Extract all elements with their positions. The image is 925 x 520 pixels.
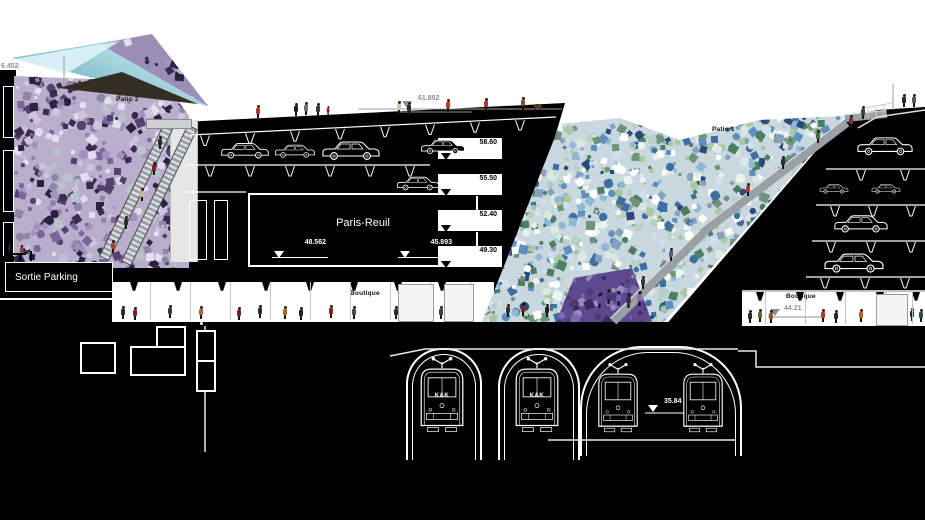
person-figure [780, 156, 786, 169]
mosaic-tile [624, 319, 629, 322]
person-figure [351, 306, 357, 319]
mosaic-tile [599, 212, 609, 222]
mosaic-tile [563, 194, 571, 202]
mosaic-tile [652, 181, 658, 187]
mosaic-tile [56, 33, 66, 43]
mosaic-tile [843, 102, 849, 108]
mosaic-tile [2, 82, 7, 87]
mosaic-tile [527, 282, 533, 288]
person-figure [132, 307, 138, 320]
mosaic-tile [2, 111, 9, 118]
person-figure [860, 106, 866, 119]
mosaic-tile [154, 107, 164, 117]
person-figure [520, 97, 526, 110]
mosaic-tile [674, 128, 684, 138]
mosaic-tile [114, 168, 122, 176]
mosaic-tile [634, 195, 639, 200]
mosaic-tile [597, 101, 607, 111]
mosaic-tile [579, 242, 584, 247]
service-room [156, 326, 186, 348]
mosaic-tile [615, 209, 621, 215]
mosaic-tile [629, 104, 638, 113]
mosaic-tile [632, 122, 640, 130]
mosaic-tile [659, 239, 665, 245]
mosaic-tile [764, 114, 770, 120]
mosaic-tile [647, 112, 659, 124]
service-dot [200, 322, 203, 325]
mosaic-tile [154, 267, 158, 268]
mosaic-tile [14, 119, 22, 122]
person-figure [303, 102, 309, 115]
mosaic-tile [589, 104, 596, 111]
left-edge-panel [3, 150, 14, 212]
mosaic-tile [879, 103, 885, 109]
storefront-doorframe [398, 284, 434, 322]
person-figure [745, 183, 751, 196]
mosaic-tile [685, 124, 692, 131]
mosaic-tile [552, 280, 560, 288]
mosaic-tile [706, 246, 714, 254]
mosaic-tile [573, 103, 578, 108]
mosaic-tile [539, 240, 544, 245]
mosaic-tile [702, 123, 709, 130]
mosaic-tile [78, 230, 85, 237]
mosaic-tile [579, 147, 584, 152]
mosaic-tile [198, 39, 209, 50]
person-figure [120, 306, 126, 319]
mosaic-tile [696, 162, 707, 173]
person-figure [236, 307, 242, 320]
mosaic-tile [567, 101, 574, 108]
boutique-left-label: Boutique [350, 290, 380, 297]
person-figure [668, 248, 674, 261]
hall-side-panel [189, 200, 207, 260]
mosaic-tile [102, 206, 106, 210]
mosaic-tile [777, 102, 784, 109]
mosaic-tile [580, 114, 584, 118]
mosaic-tile [562, 145, 567, 150]
mosaic-tile [86, 121, 95, 122]
mosaic-tile [59, 254, 67, 262]
mosaic-tile [557, 204, 564, 211]
mosaic-tile [690, 121, 702, 133]
mosaic-tile [74, 243, 80, 249]
person-figure [757, 309, 763, 322]
mosaic-tile [568, 217, 577, 226]
mosaic-tile [677, 122, 688, 133]
mosaic-tile [540, 245, 544, 249]
person-figure [833, 310, 839, 323]
mosaic-tile [572, 110, 581, 119]
mosaic-tile [145, 50, 149, 54]
mosaic-tile [774, 185, 778, 189]
mosaic-tile [625, 103, 632, 110]
sortie-band-line [0, 298, 120, 300]
mosaic-tile [531, 267, 538, 274]
mosaic-tile [668, 140, 675, 147]
mosaic-tile [601, 275, 606, 280]
mosaic-tile [600, 157, 608, 165]
mosaic-tile [677, 234, 684, 241]
mosaic-tile [679, 206, 690, 217]
mosaic-tile [213, 28, 220, 36]
mosaic-tile [187, 68, 196, 77]
mosaic-tile [694, 105, 699, 110]
mosaic-tile [840, 102, 844, 106]
mosaic-tile [581, 103, 589, 111]
mosaic-tile [3, 98, 13, 108]
mosaic-tile [817, 119, 824, 126]
mosaic-tile [640, 262, 649, 271]
mosaic-tile [759, 202, 767, 210]
elevation-marker-p1: 58.60 [438, 138, 502, 160]
mosaic-tile [564, 158, 568, 162]
mosaic-tile [115, 118, 121, 122]
person-figure [918, 309, 924, 322]
mosaic-tile [51, 104, 57, 110]
mosaic-tile [199, 28, 208, 36]
mosaic-tile [782, 124, 787, 129]
mosaic-tile [785, 100, 793, 108]
mosaic-tile [52, 135, 60, 143]
mosaic-tile [615, 119, 619, 123]
mosaic-tile [6, 28, 10, 32]
person-figure [282, 306, 288, 319]
mosaic-tile [684, 105, 690, 111]
person-figure [747, 310, 753, 323]
mosaic-tile [37, 120, 48, 122]
mosaic-tile [646, 300, 652, 306]
cafe-chair [4, 251, 6, 261]
mosaic-tile [796, 108, 807, 119]
mosaic-tile [559, 137, 566, 144]
person-figure [768, 310, 774, 323]
person-figure [406, 102, 412, 115]
mosaic-tile [183, 41, 189, 47]
mosaic-tile [700, 258, 704, 262]
mosaic-tile [581, 294, 585, 298]
mosaic-tile [782, 143, 788, 149]
person-figure [7, 243, 12, 254]
mosaic-tile [585, 189, 589, 193]
mosaic-tile [735, 120, 740, 125]
mosaic-tile [213, 93, 220, 102]
mosaic-tile [34, 245, 42, 253]
mosaic-tile [532, 310, 542, 320]
mosaic-tile [1, 52, 5, 56]
mosaic-tile [106, 158, 113, 165]
mosaic-tile [802, 101, 807, 106]
mosaic-tile [557, 320, 562, 322]
person-figure [19, 245, 24, 256]
mosaic-tile [715, 249, 724, 258]
person-figure [636, 291, 643, 306]
patio2-label: Patio 2 [116, 96, 139, 103]
mosaic-tile [801, 115, 807, 121]
mosaic-tile [587, 214, 591, 218]
mosaic-tile [510, 296, 515, 301]
mosaic-tile [592, 101, 599, 108]
mosaic-tile [157, 112, 165, 120]
mosaic-tile [195, 84, 199, 88]
mosaic-tile [795, 104, 801, 110]
mosaic-tile [733, 102, 741, 110]
mosaic-tile [589, 236, 596, 243]
mosaic-tile [65, 209, 70, 214]
mosaic-tile [78, 118, 86, 122]
mosaic-tile [747, 106, 753, 112]
mosaic-tile [565, 287, 569, 291]
mosaic-tile [575, 198, 582, 205]
mosaic-tile [667, 100, 679, 111]
person-figure [157, 136, 163, 149]
hall-side-panel [214, 200, 228, 260]
service-room [80, 342, 116, 374]
mosaic-tile [215, 107, 220, 112]
mosaic-tile [689, 221, 694, 226]
mosaic-tile [13, 85, 22, 94]
mosaic-tile [582, 313, 588, 319]
mosaic-tile [581, 108, 590, 117]
mosaic-tile [631, 274, 636, 279]
tram-marking: K&K [511, 393, 563, 399]
storefront-mullion [270, 282, 271, 320]
mosaic-tile [50, 210, 59, 219]
person-figure [298, 307, 304, 320]
mosaic-tile [553, 163, 560, 170]
mosaic-tile [617, 108, 629, 120]
mosaic-tile [567, 254, 574, 261]
mosaic-tile [539, 277, 544, 282]
mosaic-tile [76, 179, 80, 183]
mosaic-tile [214, 56, 219, 61]
mosaic-tile [585, 175, 589, 179]
mosaic-tile [535, 245, 539, 249]
mosaic-tile [747, 141, 756, 150]
mosaic-tile [13, 80, 24, 91]
storefront-mullion [845, 292, 846, 324]
mosaic-tile [655, 106, 664, 115]
mosaic-tile [692, 189, 698, 195]
mosaic-tile [596, 223, 601, 228]
mosaic-tile [174, 55, 181, 62]
mosaic-tile [54, 99, 60, 105]
mosaic-tile [146, 253, 154, 261]
mosaic-tile [552, 308, 557, 313]
mosaic-tile [640, 251, 647, 258]
mosaic-tile [664, 106, 669, 111]
mosaic-tile [716, 155, 721, 160]
glass-canopy [0, 28, 220, 122]
mosaic-tile [559, 221, 567, 229]
mosaic-tile [651, 116, 658, 123]
mosaic-tile [45, 39, 54, 48]
mosaic-tile [77, 160, 84, 167]
mosaic-tile [33, 126, 44, 137]
mosaic-tile [745, 118, 753, 126]
mosaic-tile [113, 205, 117, 209]
mosaic-tile [725, 227, 734, 236]
patio1-label: Patio 1 [712, 126, 735, 133]
mosaic-tile [171, 266, 178, 268]
person-figure [596, 293, 603, 308]
mosaic-tile [40, 91, 49, 100]
tram: K&K [416, 354, 468, 438]
mosaic-tile [137, 129, 143, 135]
section-drawing: Patio 2 Patio 1 Sortie Parking Paris-Reu… [0, 0, 925, 520]
mosaic-tile [665, 149, 670, 154]
mosaic-tile [199, 114, 208, 122]
mosaic-tile [87, 114, 94, 121]
mosaic-tile [14, 171, 19, 176]
mosaic-tile [17, 38, 24, 45]
storefront-mullion [310, 282, 311, 320]
elevation-street-right: 44.21 [784, 305, 802, 312]
mosaic-tile [173, 262, 177, 266]
elevation-top-deck: 61.892 [418, 95, 439, 102]
mosaic-tile [163, 249, 169, 255]
storefront-mullion [390, 282, 391, 320]
mosaic-tile [87, 164, 94, 171]
mosaic-tile [194, 41, 203, 50]
mosaic-tile [735, 112, 743, 120]
mosaic-tile [634, 224, 641, 231]
storefront-mullion [912, 292, 913, 324]
mosaic-tile [624, 279, 628, 283]
mosaic-tile [150, 67, 155, 72]
elevation-marker-hall-left: 48.562 [272, 239, 328, 258]
mosaic-tile [511, 308, 519, 316]
storefront-mullion [765, 292, 766, 324]
mosaic-tile [637, 141, 646, 150]
mosaic-tile [597, 109, 607, 119]
mosaic-tile [761, 100, 768, 106]
mosaic-tile [75, 95, 81, 101]
mosaic-tile [209, 88, 220, 99]
mosaic-tile [33, 112, 42, 121]
mosaic-tile [534, 210, 541, 217]
mosaic-tile [162, 233, 167, 238]
mosaic-tile [154, 101, 162, 109]
mosaic-tile [626, 189, 632, 195]
mosaic-tile [685, 156, 689, 160]
mosaic-tile [762, 101, 771, 110]
mosaic-tile [181, 62, 188, 69]
mosaic-tile [108, 105, 113, 110]
mosaic-tile [763, 100, 768, 105]
boutique-right-label: Boutique [786, 293, 816, 300]
person-figure [315, 103, 321, 116]
mosaic-tile [815, 112, 821, 118]
mosaic-tile [156, 161, 165, 170]
mosaic-tile [74, 226, 79, 231]
person-figure [901, 94, 907, 107]
mosaic-tile [760, 145, 765, 150]
elevation-marker-p2: 55.50 [438, 174, 502, 196]
person-figure [123, 216, 129, 229]
mosaic-tile [29, 177, 35, 183]
mosaic-tile [70, 149, 75, 154]
mosaic-tile [145, 60, 150, 65]
person-figure [139, 188, 145, 201]
mosaic-tile [724, 103, 736, 115]
mosaic-tile [866, 101, 872, 107]
person-figure [396, 101, 402, 114]
tram [679, 360, 727, 438]
mosaic-tile [651, 232, 658, 239]
mosaic-tile [611, 144, 619, 152]
tram-marking: K&K [416, 393, 468, 399]
mosaic-tile [534, 229, 540, 235]
mosaic-tile [190, 36, 202, 48]
mosaic-tile [656, 109, 665, 118]
mosaic-tile [630, 111, 635, 116]
mosaic-tile [175, 120, 180, 122]
service-shaft [196, 330, 216, 362]
person-figure [293, 103, 299, 116]
mosaic-tile [693, 114, 702, 123]
mosaic-tile [137, 253, 144, 260]
storefront-mullion [350, 282, 351, 320]
elevation-marker-p4: 49.30 [438, 246, 502, 268]
dog-figure [534, 104, 542, 108]
mosaic-tile [668, 123, 677, 132]
mosaic-tile [1, 115, 9, 122]
mosaic-tile [11, 81, 21, 91]
mosaic-tile [716, 170, 719, 173]
mosaic-tile [761, 115, 770, 124]
mosaic-tile [586, 221, 595, 230]
cafe-chair [30, 251, 32, 261]
mosaic-tile [730, 115, 741, 126]
mosaic-tile [581, 285, 586, 290]
mosaic-tile [208, 98, 213, 103]
storefront-mullion [190, 282, 191, 320]
mosaic-tile [620, 132, 629, 141]
mosaic-tile [45, 96, 49, 100]
mosaic-tile [476, 101, 483, 108]
mosaic-tile [570, 266, 575, 271]
person-figure [615, 291, 622, 306]
mosaic-tile [57, 239, 64, 246]
person-figure [255, 105, 261, 118]
mosaic-tile [664, 300, 674, 310]
person-figure [110, 240, 116, 253]
storefront-doorframe [876, 294, 908, 326]
elevation-marker-p3: 52.40 [438, 210, 502, 232]
mosaic-tile [4, 71, 13, 80]
mosaic-tile [128, 116, 135, 122]
mosaic-tile [105, 177, 115, 187]
mosaic-tile [191, 35, 195, 39]
mosaic-tile [83, 96, 87, 100]
mosaic-tile [709, 102, 716, 109]
mosaic-tile [167, 115, 179, 122]
person-figure [911, 94, 917, 107]
mosaic-tile [735, 173, 744, 182]
mosaic-tile [605, 129, 611, 135]
mosaic-tile [606, 111, 615, 120]
person-figure [257, 305, 263, 318]
mosaic-tile [88, 211, 95, 218]
mosaic-tile [595, 255, 603, 263]
mosaic-tile [577, 108, 585, 116]
mosaic-tile [546, 269, 554, 277]
mosaic-tile [55, 220, 63, 228]
mosaic-tile [80, 194, 88, 202]
mosaic-tile [59, 193, 67, 201]
mosaic-tile [155, 63, 159, 67]
